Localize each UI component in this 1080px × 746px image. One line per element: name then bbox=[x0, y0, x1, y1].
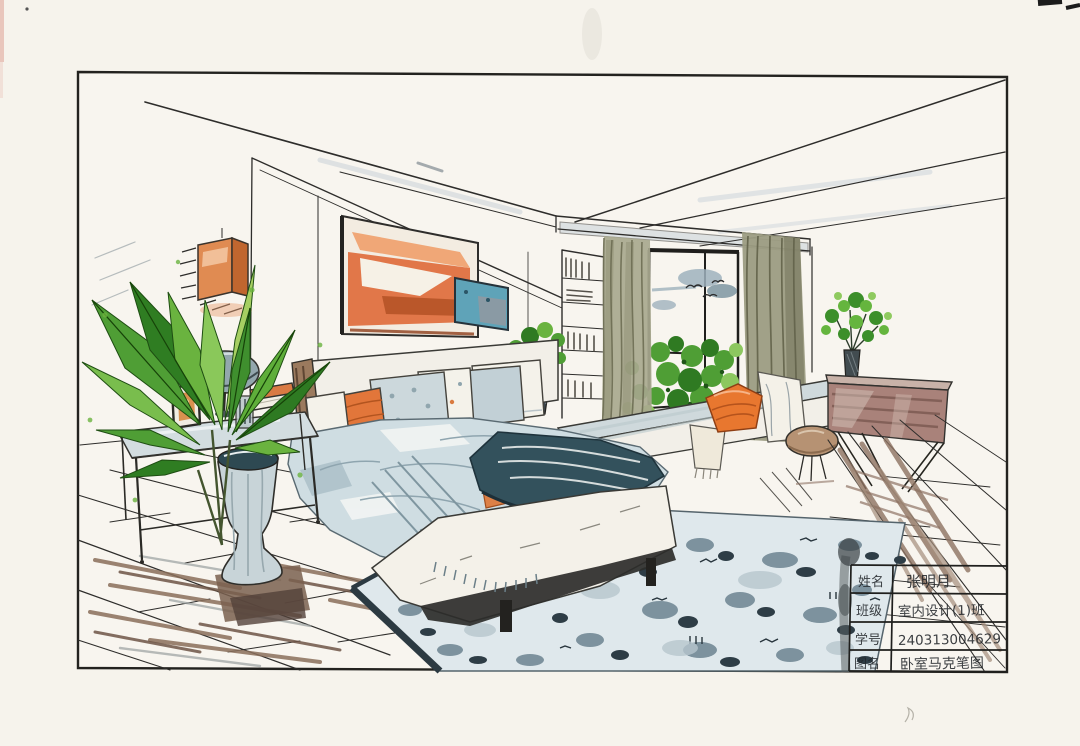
title-value-class: 室内设计(1)班 bbox=[898, 601, 985, 620]
bedroom-sketch: 姓名 张明月 班级 室内设计(1)班 学号 240313004629 图名 卧室… bbox=[0, 0, 1080, 746]
curtain-left bbox=[602, 236, 652, 438]
bed-leg bbox=[500, 600, 512, 632]
title-label-drawing: 图名 bbox=[854, 656, 880, 672]
title-value-name: 张明月 bbox=[906, 572, 951, 591]
artwork-canvas: 姓名 张明月 班级 室内设计(1)班 学号 240313004629 图名 卧室… bbox=[0, 0, 1080, 746]
title-label-id: 学号 bbox=[855, 632, 881, 648]
title-value-drawing: 卧室马克笔图 bbox=[900, 655, 984, 673]
bed-leg bbox=[646, 558, 656, 586]
title-label-name: 姓名 bbox=[858, 574, 884, 590]
title-value-id: 240313004629 bbox=[898, 631, 1001, 649]
title-label-class: 班级 bbox=[856, 604, 882, 619]
